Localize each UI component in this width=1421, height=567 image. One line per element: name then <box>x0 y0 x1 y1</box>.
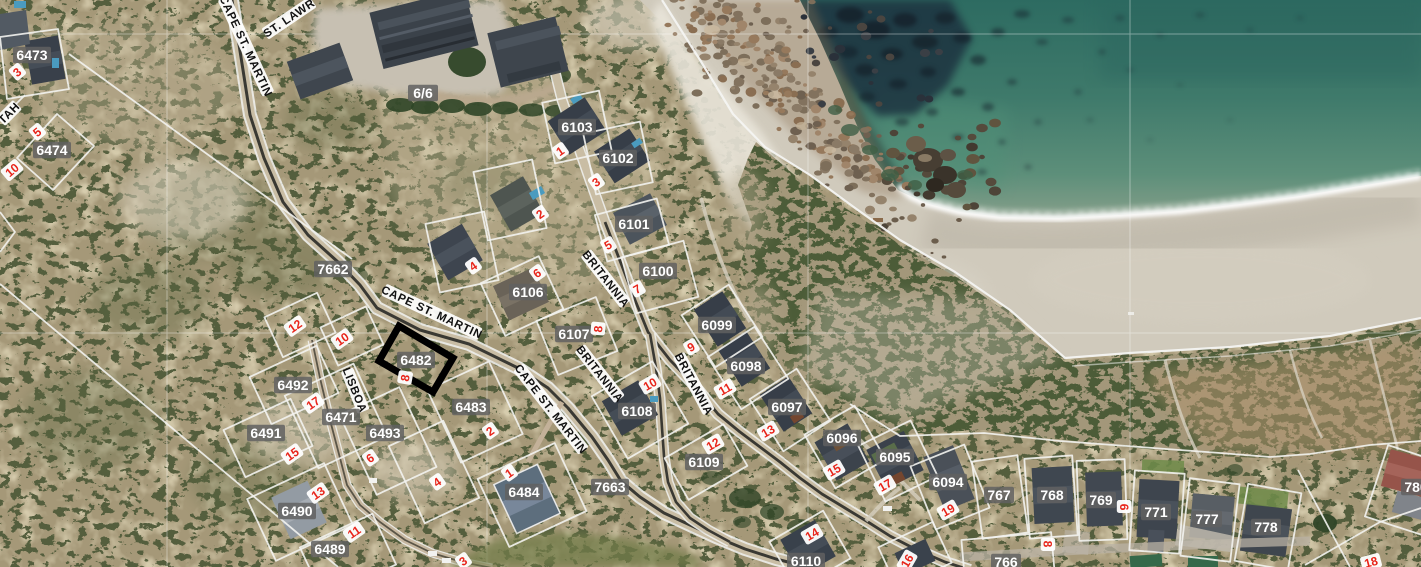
svg-text:766: 766 <box>994 554 1018 567</box>
svg-text:780: 780 <box>1404 479 1421 495</box>
svg-text:6/6: 6/6 <box>413 85 433 101</box>
svg-text:6101: 6101 <box>618 216 649 232</box>
svg-text:6489: 6489 <box>314 541 345 557</box>
svg-text:6109: 6109 <box>688 454 719 470</box>
svg-text:769: 769 <box>1089 492 1113 508</box>
svg-text:6493: 6493 <box>369 425 400 441</box>
svg-text:6099: 6099 <box>701 317 732 333</box>
svg-text:6103: 6103 <box>561 119 592 135</box>
svg-text:6102: 6102 <box>602 150 633 166</box>
svg-text:6097: 6097 <box>771 399 802 415</box>
svg-text:6106: 6106 <box>512 284 543 300</box>
svg-text:6100: 6100 <box>642 263 673 279</box>
svg-text:7663: 7663 <box>594 479 625 495</box>
svg-text:6094: 6094 <box>932 474 963 490</box>
svg-text:6483: 6483 <box>455 399 486 415</box>
svg-text:778: 778 <box>1254 519 1278 535</box>
svg-text:8: 8 <box>1041 541 1055 548</box>
svg-text:6492: 6492 <box>277 377 308 393</box>
svg-text:768: 768 <box>1040 487 1064 503</box>
svg-text:767: 767 <box>987 487 1011 503</box>
svg-text:6471: 6471 <box>325 409 356 425</box>
svg-text:6490: 6490 <box>281 503 312 519</box>
svg-text:6482: 6482 <box>400 352 431 368</box>
svg-text:6110: 6110 <box>791 553 822 567</box>
svg-text:777: 777 <box>1195 511 1219 527</box>
svg-text:9: 9 <box>1117 503 1131 510</box>
svg-text:6095: 6095 <box>879 449 910 465</box>
svg-text:6107: 6107 <box>558 326 589 342</box>
svg-text:6491: 6491 <box>250 425 281 441</box>
svg-text:771: 771 <box>1144 504 1168 520</box>
svg-text:7662: 7662 <box>317 261 348 277</box>
svg-text:6108: 6108 <box>621 403 652 419</box>
svg-text:6474: 6474 <box>36 142 67 158</box>
svg-text:6473: 6473 <box>16 47 47 63</box>
svg-text:6484: 6484 <box>508 484 539 500</box>
svg-text:6098: 6098 <box>730 358 761 374</box>
svg-text:6096: 6096 <box>826 430 857 446</box>
